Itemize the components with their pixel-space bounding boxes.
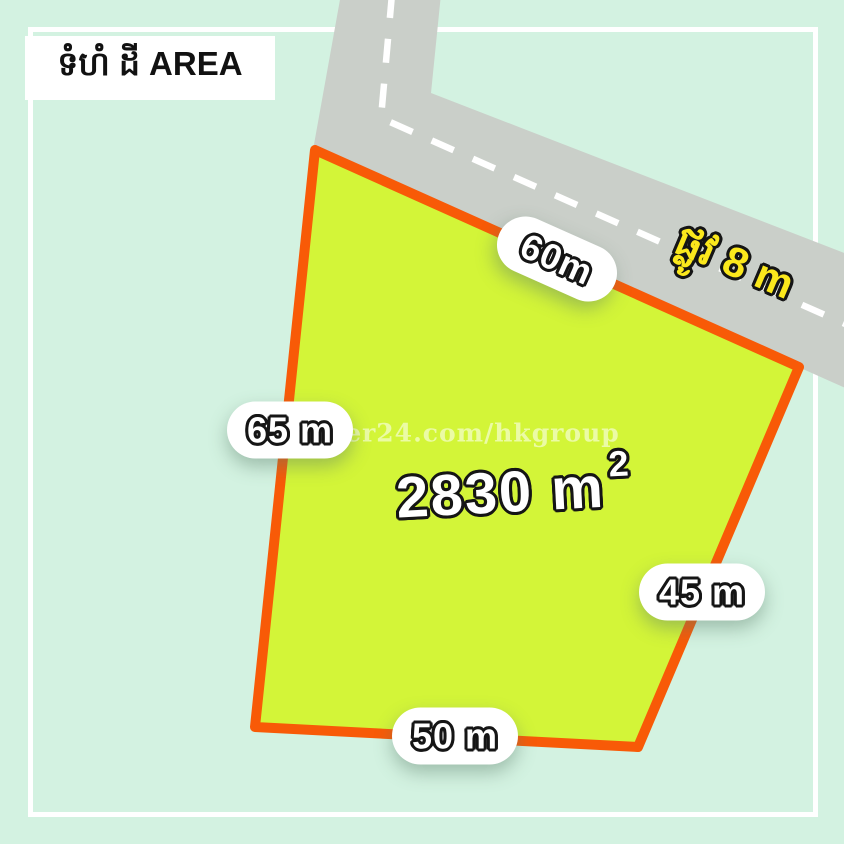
area-value: 2830 m [395,455,607,531]
dimension-pill-right: 45 m [639,564,765,621]
dimension-label-right: 45 m [659,571,745,613]
dimension-label-left: 65 m [247,409,333,451]
dimension-pill-bottom: 50 m [392,708,518,765]
dimension-pill-left: 65 m [227,402,353,459]
area-label: 2830 m2 [395,452,632,531]
title-box: ទំហំ ដី AREA [25,36,275,100]
page-title: ទំហំ ដី AREA [57,44,242,92]
area-exponent: 2 [607,442,629,484]
land-plot-diagram: khmer24.com/hkgroup 2830 m2 60m 65 m 45 … [0,0,844,844]
dimension-label-bottom: 50 m [412,715,498,757]
